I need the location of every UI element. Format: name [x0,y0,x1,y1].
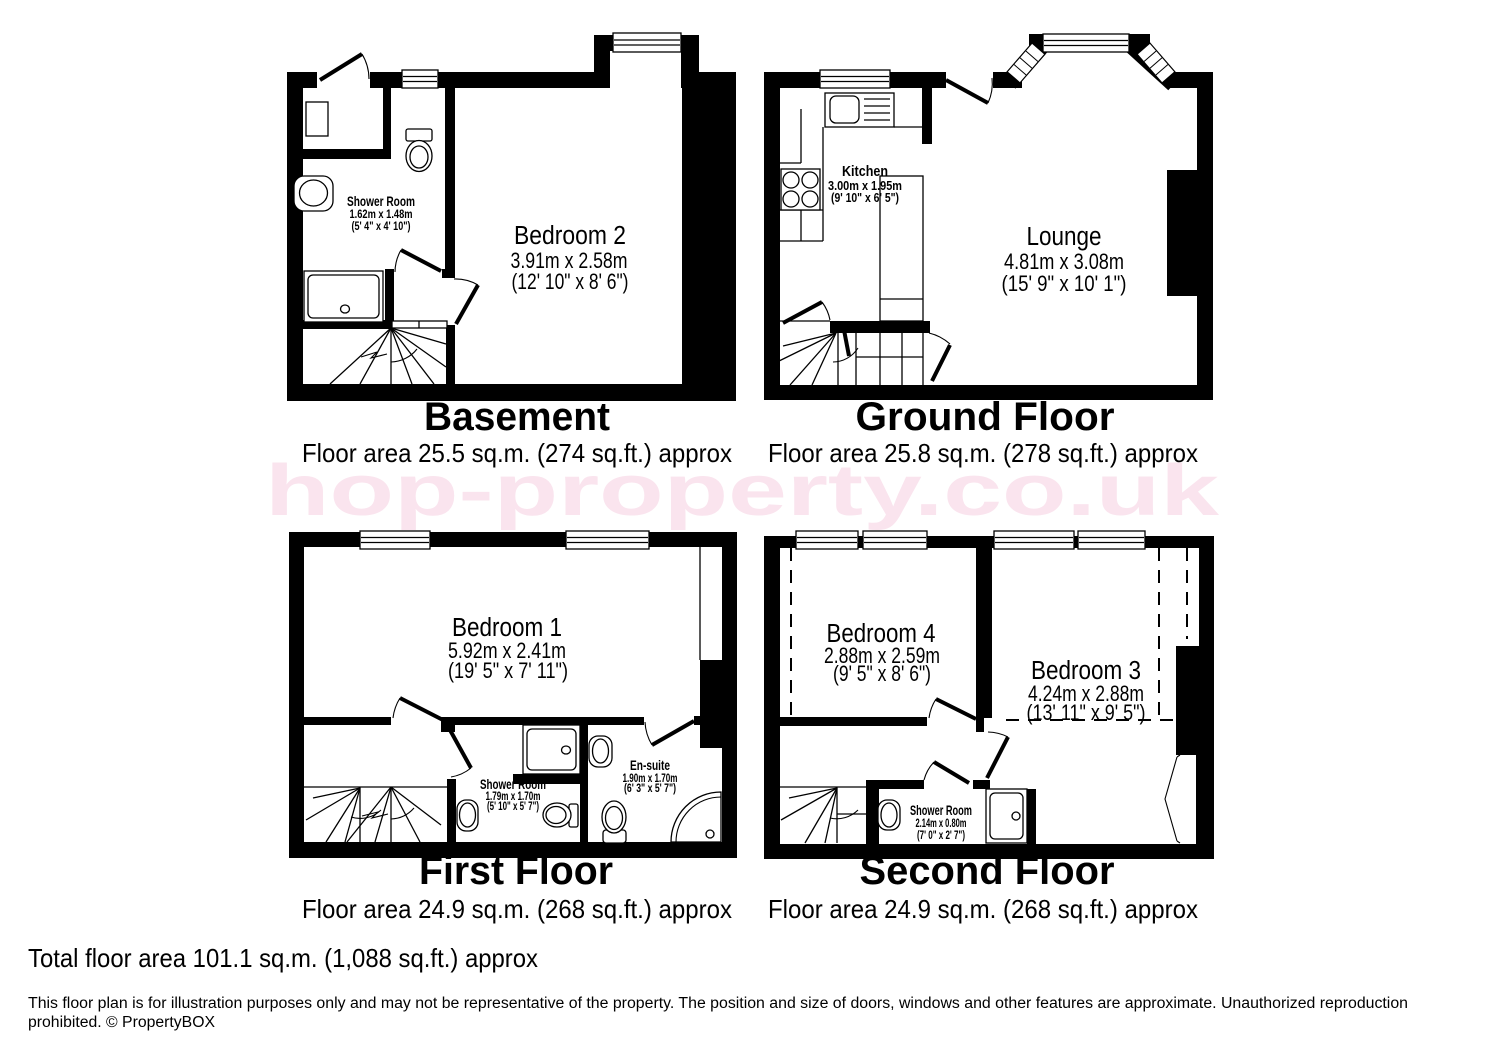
svg-text:Bedroom 2: Bedroom 2 [514,222,626,250]
svg-text:prohibited. © PropertyBOX: prohibited. © PropertyBOX [28,1014,216,1031]
svg-text:1.62m x 1.48m: 1.62m x 1.48m [350,209,413,221]
svg-text:En-suite: En-suite [630,757,670,773]
svg-text:Second Floor: Second Floor [860,849,1115,893]
svg-text:Floor area 25.8 sq.m. (278 sq.: Floor area 25.8 sq.m. (278 sq.ft.) appro… [768,438,1198,468]
svg-text:(15' 9" x 10' 1"): (15' 9" x 10' 1") [1002,271,1127,296]
svg-text:First Floor: First Floor [419,849,613,893]
svg-text:Floor area 25.5 sq.m. (274 sq.: Floor area 25.5 sq.m. (274 sq.ft.) appro… [302,438,732,468]
svg-text:Ground Floor: Ground Floor [856,395,1115,439]
svg-text:Kitchen: Kitchen [842,163,888,180]
svg-text:2.14m x 0.80m: 2.14m x 0.80m [916,818,967,830]
svg-text:This floor plan is for illustr: This floor plan is for illustration purp… [28,995,1408,1012]
svg-text:Shower Room: Shower Room [480,776,546,792]
svg-text:(5' 10" x 5' 7"): (5' 10" x 5' 7") [487,801,539,813]
svg-text:(5' 4" x 4' 10"): (5' 4" x 4' 10") [352,221,411,233]
svg-text:(13' 11" x 9' 5"): (13' 11" x 9' 5") [1027,700,1146,725]
svg-text:Shower Room: Shower Room [347,193,415,209]
svg-text:Shower Room: Shower Room [910,802,972,818]
svg-text:(7' 0" x 2' 7"): (7' 0" x 2' 7") [917,830,965,842]
svg-text:(9' 5" x 8' 6"): (9' 5" x 8' 6") [833,661,931,686]
svg-text:Floor area 24.9 sq.m. (268 sq.: Floor area 24.9 sq.m. (268 sq.ft.) appro… [302,894,732,924]
svg-text:Lounge: Lounge [1027,223,1102,251]
svg-text:(19' 5" x 7' 11"): (19' 5" x 7' 11") [448,658,568,683]
svg-text:Basement: Basement [424,395,610,439]
svg-text:Floor area 24.9 sq.m. (268 sq.: Floor area 24.9 sq.m. (268 sq.ft.) appro… [768,894,1198,924]
svg-text:(12' 10" x 8' 6"): (12' 10" x 8' 6") [512,269,629,294]
svg-text:(6' 3" x 5' 7"): (6' 3" x 5' 7") [624,783,676,795]
svg-text:Total floor area 101.1 sq.m. (: Total floor area 101.1 sq.m. (1,088 sq.f… [28,943,538,973]
svg-text:(9' 10" x 6' 5"): (9' 10" x 6' 5") [831,191,899,205]
